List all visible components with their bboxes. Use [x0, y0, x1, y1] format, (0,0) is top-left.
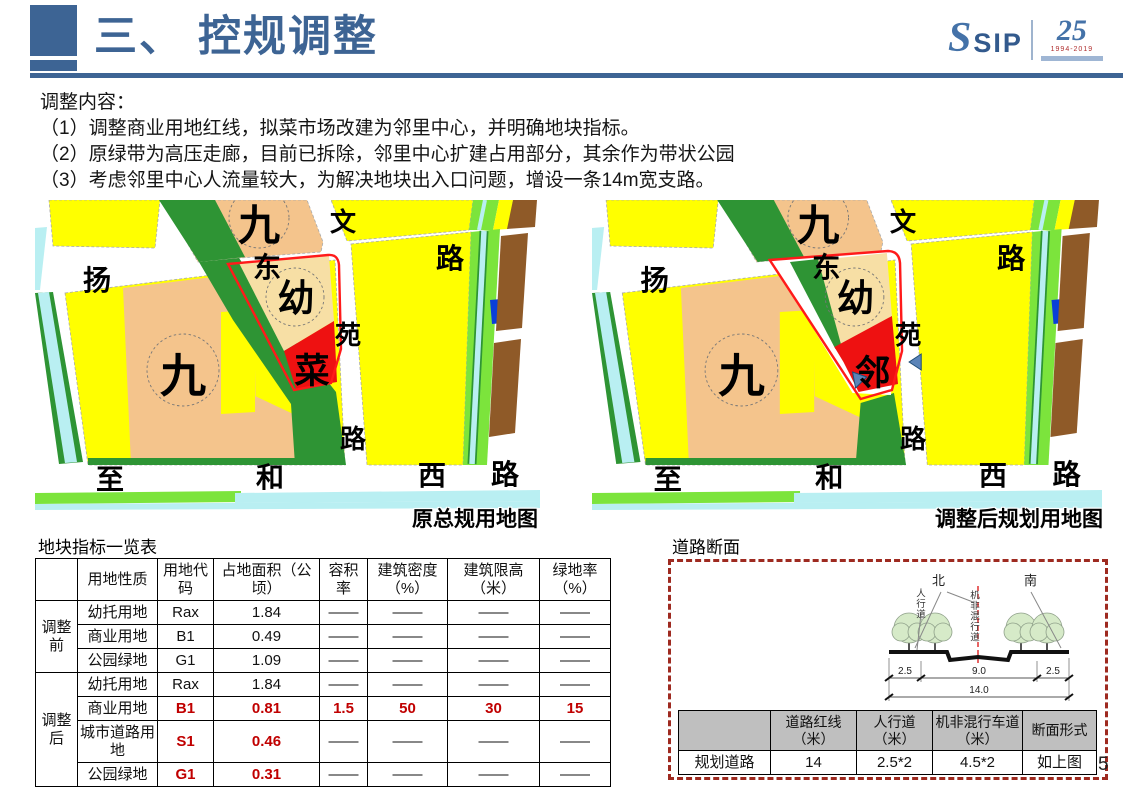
cell: 30 — [448, 697, 540, 721]
table-row: 商业用地 B1 0.49 —— —— —— —— — [36, 625, 611, 649]
cell: —— — [368, 673, 448, 697]
table-row: 公园绿地 G1 1.09 —— —— —— —— — [36, 649, 611, 673]
adjustment-item-1: （1）调整商业用地红线，拟菜市场改建为邻里中心，并明确地块指标。 — [40, 116, 735, 142]
cell: 规划道路 — [679, 751, 771, 775]
cell: —— — [368, 601, 448, 625]
dim-carriageway: 9.0 — [972, 666, 986, 677]
cell: —— — [448, 763, 540, 787]
caption-adjusted-map: 调整后规划用地图 — [935, 503, 1103, 533]
cell: —— — [368, 649, 448, 673]
dim-sidewalk-left: 2.5 — [898, 666, 912, 677]
logo-divider — [1031, 20, 1033, 60]
cell: G1 — [158, 763, 214, 787]
sip-logo-text: SIP — [973, 28, 1023, 59]
header-section-form: 断面形式 — [1023, 711, 1097, 751]
sip-logo: S SIP 25 1994-2019 — [948, 16, 1103, 68]
cell: 如上图 — [1023, 751, 1097, 775]
cell: 1.84 — [214, 601, 320, 625]
cell: B1 — [158, 697, 214, 721]
title-accent-square — [30, 5, 77, 56]
road-table-header-row: 道路红线（米） 人行道（米） 机非混行车道（米） 断面形式 — [679, 711, 1097, 751]
cell: 50 — [368, 697, 448, 721]
header-far: 容积率 — [320, 559, 368, 601]
cell: —— — [320, 721, 368, 763]
label-mixed-lane: 机非混行道 — [968, 590, 978, 643]
cell: —— — [320, 763, 368, 787]
sip-s-icon: S — [948, 16, 971, 60]
label-market: 菜 — [294, 352, 329, 391]
cell: 城市道路用地 — [78, 721, 158, 763]
cell: —— — [448, 673, 540, 697]
cell: —— — [540, 721, 611, 763]
table-row: 调整前 幼托用地 Rax 1.84 —— —— —— —— — [36, 601, 611, 625]
cell: 1.5 — [320, 697, 368, 721]
map-original-plan: 菜 — [35, 200, 540, 510]
cell: 2.5*2 — [857, 751, 933, 775]
cell: —— — [540, 763, 611, 787]
adjustment-item-2: （2）原绿带为高压走廊，目前已拆除，邻里中心扩建占用部分，其余作为带状公园 — [40, 142, 735, 168]
cell: —— — [540, 649, 611, 673]
cell: 14 — [771, 751, 857, 775]
cell: 1.09 — [214, 649, 320, 673]
cell: —— — [320, 601, 368, 625]
cell: Rax — [158, 673, 214, 697]
group-after: 调整后 — [36, 673, 78, 787]
cell: 1.84 — [214, 673, 320, 697]
anniversary-subtext-bar — [1041, 56, 1103, 61]
cell: —— — [320, 649, 368, 673]
cell: 0.49 — [214, 625, 320, 649]
header-green-ratio: 绿地率（%） — [540, 559, 611, 601]
cell: 公园绿地 — [78, 763, 158, 787]
header-mixed-lane: 机非混行车道（米） — [933, 711, 1023, 751]
cell: 商业用地 — [78, 625, 158, 649]
table-row: 城市道路用地 S1 0.46 —— —— —— —— — [36, 721, 611, 763]
adjustment-content: 调整内容： （1）调整商业用地红线，拟菜市场改建为邻里中心，并明确地块指标。 （… — [40, 90, 735, 194]
road-section-box: 2.5 9.0 2.5 14.0 北 南 人行道 机非混行道 道路红线（米） 人… — [668, 559, 1108, 780]
page-number: 5 — [1098, 754, 1109, 776]
cell: S1 — [158, 721, 214, 763]
cell: 4.5*2 — [933, 751, 1023, 775]
cell: —— — [540, 673, 611, 697]
title-accent-bar — [30, 60, 77, 71]
cell: 0.31 — [214, 763, 320, 787]
header-land-code: 用地代码 — [158, 559, 214, 601]
cell: 商业用地 — [78, 697, 158, 721]
road-profile — [889, 652, 1069, 660]
cell: —— — [540, 625, 611, 649]
anniversary-number: 25 — [1057, 16, 1087, 46]
table-row: 调整后 幼托用地 Rax 1.84 —— —— —— —— — [36, 673, 611, 697]
adjustment-item-3: （3）考虑邻里中心人流量较大，为解决地块出入口问题，增设一条14m宽支路。 — [40, 168, 735, 194]
slide: 三、 控规调整 S SIP 25 1994-2019 调整内容： （1）调整商业… — [0, 0, 1123, 794]
caption-original-map: 原总规用地图 — [412, 503, 538, 533]
anniversary-logo: 25 1994-2019 — [1041, 16, 1103, 61]
dim-sidewalk-right: 2.5 — [1046, 666, 1060, 677]
road-section-title: 道路断面 — [672, 533, 740, 558]
cell: —— — [368, 721, 448, 763]
cell: 幼托用地 — [78, 673, 158, 697]
cell: —— — [540, 601, 611, 625]
table-row: 公园绿地 G1 0.31 —— —— —— —— — [36, 763, 611, 787]
cell: —— — [320, 673, 368, 697]
road-table: 道路红线（米） 人行道（米） 机非混行车道（米） 断面形式 规划道路 14 2.… — [678, 710, 1097, 775]
cell: 公园绿地 — [78, 649, 158, 673]
header-blank — [679, 711, 771, 751]
cell: —— — [448, 601, 540, 625]
header-blank — [36, 559, 78, 601]
table-row: 商业用地 B1 0.81 1.5 50 30 15 — [36, 697, 611, 721]
label-south: 南 — [1024, 570, 1037, 589]
cell: 0.81 — [214, 697, 320, 721]
cell: —— — [448, 625, 540, 649]
cell: —— — [368, 763, 448, 787]
group-before: 调整前 — [36, 601, 78, 673]
cell: G1 — [158, 649, 214, 673]
dim-total: 14.0 — [969, 685, 989, 696]
indicator-table-title: 地块指标一览表 — [38, 533, 157, 558]
adjustment-heading: 调整内容： — [40, 90, 735, 116]
indicator-table: 用地性质 用地代码 占地面积（公顷） 容积率 建筑密度（%） 建筑限高（米） 绿… — [35, 558, 611, 787]
header-area: 占地面积（公顷） — [214, 559, 320, 601]
label-neighborhood-center: 邻 — [855, 354, 890, 393]
cell: —— — [448, 721, 540, 763]
indicator-header-row: 用地性质 用地代码 占地面积（公顷） 容积率 建筑密度（%） 建筑限高（米） 绿… — [36, 559, 611, 601]
label-sidewalk: 人行道 — [914, 588, 924, 620]
header-rule — [30, 73, 1123, 78]
cell: —— — [320, 625, 368, 649]
header-height-limit: 建筑限高（米） — [448, 559, 540, 601]
anniversary-years: 1994-2019 — [1051, 46, 1093, 54]
cell: Rax — [158, 601, 214, 625]
header-red-line: 道路红线（米） — [771, 711, 857, 751]
header-density: 建筑密度（%） — [368, 559, 448, 601]
cell: 15 — [540, 697, 611, 721]
cell: —— — [448, 649, 540, 673]
map-adjusted-plan: 邻 — [592, 200, 1102, 510]
header-land-use: 用地性质 — [78, 559, 158, 601]
cell: B1 — [158, 625, 214, 649]
cell: —— — [368, 625, 448, 649]
cell: 0.46 — [214, 721, 320, 763]
cell: 幼托用地 — [78, 601, 158, 625]
road-table-row: 规划道路 14 2.5*2 4.5*2 如上图 — [679, 751, 1097, 775]
label-north: 北 — [932, 570, 945, 589]
page-title: 三、 控规调整 — [94, 2, 378, 64]
header-sidewalk: 人行道（米） — [857, 711, 933, 751]
